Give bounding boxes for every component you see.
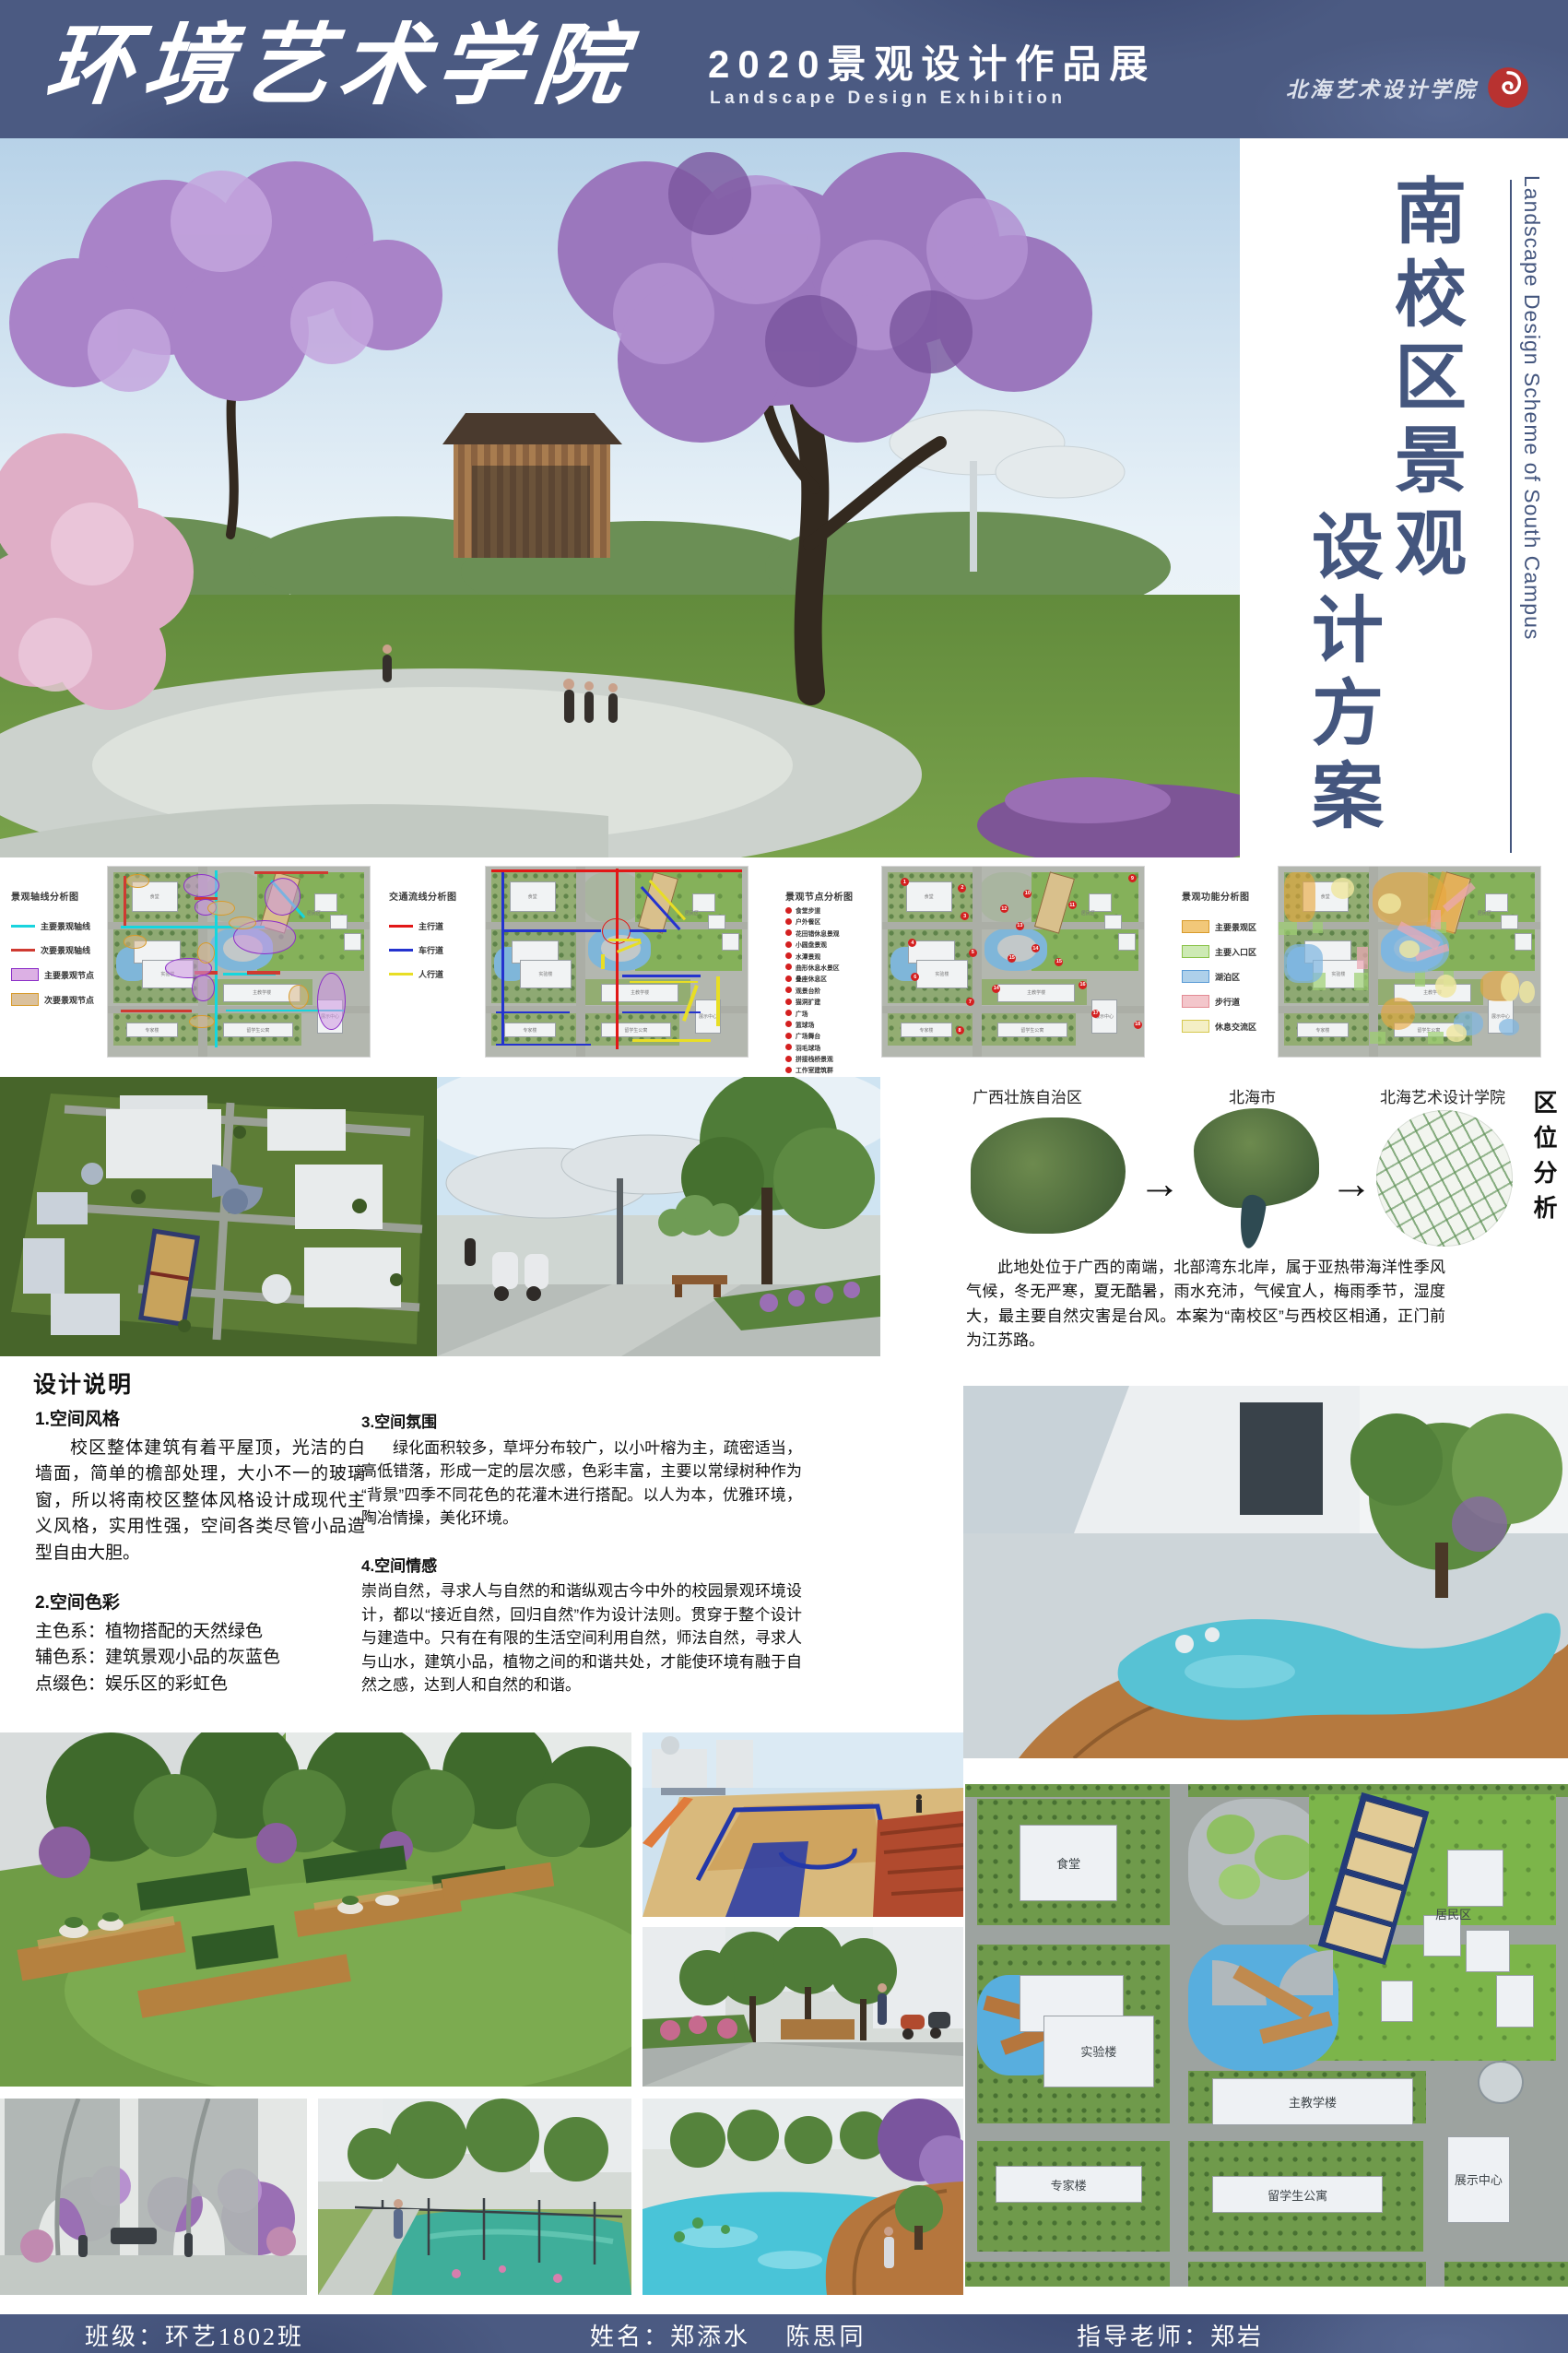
render-arch-pavilion [0,2099,307,2295]
legend-item: 食堂步道 [785,905,894,915]
location-analysis: 广西壮族自治区 北海市 北海艺术设计学院 → → 区位分析 [963,1077,1568,1252]
legend-label: 人行道 [419,968,443,980]
legend-swatch [1182,1020,1209,1033]
analysis-map: 食堂实验楼主教学楼专家楼留学生公寓展示中心居民区 [485,866,749,1058]
plan-building-label: 实验楼 [520,960,572,988]
analysis-panel-axis: 景观轴线分析图 主要景观轴线次要景观轴线主要景观节点次要景观节点 食堂实验楼主教… [6,863,372,1077]
legend-swatch [785,975,792,982]
legend-item: 观景台阶 [785,986,894,995]
node-marker: 12 [1000,905,1008,913]
plan-building-label: 专家楼 [504,1023,556,1037]
map-guangxi [971,1117,1126,1234]
node-marker: 5 [969,949,977,957]
legend-swatch [785,964,792,970]
legend-label: 次要景观轴线 [41,944,90,956]
legend-swatch [1182,970,1209,983]
legend-swatch [1182,945,1209,958]
legend-item: 步行道 [1182,995,1276,1008]
analysis-legend: 主行道车行道人行道 [389,920,483,980]
plan-building-label: 实验楼 [1043,2016,1154,2087]
plan-building-label: 实验楼 [916,960,968,988]
legend-label: 猫洞扩建 [796,997,820,1006]
legend-swatch [785,952,792,959]
hero-illustration [0,138,1240,857]
legend-item: 广场 [785,1009,894,1018]
legend-item: 车行道 [389,944,483,956]
legend-label: 休息交流区 [1215,1021,1256,1033]
legend-label: 小圆盘景观 [796,940,827,949]
location-description: 此地处位于广西的南端，北部湾东北岸，属于亚热带海洋性季风气候，冬无严寒，夏无酷暑… [966,1256,1445,1353]
plan-building-label: 居民区 [307,910,344,921]
node-marker: 17 [1091,1010,1100,1018]
legend-label: 主行道 [419,920,443,932]
legend-item: 人行道 [389,968,483,980]
legend-swatch [785,907,792,914]
plan-building-label: 留学生公寓 [223,1023,293,1037]
note-heading: 3.空间氛围 [361,1411,802,1435]
render-pond-fence [318,2099,631,2295]
design-notes-col1: 1.空间风格 校区整体建筑有着平屋顶，光洁的白墙面，简单的檐部处理，大小不一的玻… [35,1407,365,1721]
poster-title-en: Landscape Design Scheme of South Campus [1519,175,1544,857]
analysis-panel-traffic: 交通流线分析图 主行道车行道人行道 食堂实验楼主教学楼专家楼留学生公寓展示中心居… [383,863,750,1077]
legend-swatch [785,941,792,948]
location-section-title: 区位分析 [1527,1090,1562,1230]
legend-swatch [11,925,35,928]
analysis-legend: 主要景观轴线次要景观轴线主要景观节点次要景观节点 [11,920,105,1006]
logo-text: 北海艺术设计学院 [1286,72,1478,103]
render-lawn-terrace [0,1732,631,2087]
analysis-title: 景观节点分析图 [785,889,854,903]
analysis-panel-function: 景观功能分析图 主要景观区主要入口区湖泊区步行道休息交流区 食堂实验楼主教学楼专… [1176,863,1543,1077]
map-campus-streets [1376,1110,1513,1247]
location-step-label: 广西壮族自治区 [973,1084,1082,1107]
legend-swatch [785,1067,792,1073]
plan-building-label: 居民区 [1435,1905,1520,1930]
street2-illustration [643,1927,963,2087]
legend-swatch [389,925,413,928]
analysis-title: 景观轴线分析图 [11,889,79,903]
street-illustration [437,1077,880,1356]
legend-item: 广场舞台 [785,1031,894,1040]
legend-label: 篮球场 [796,1020,814,1029]
node-marker: 13 [1016,922,1024,930]
students-label: 姓名：郑添水 陈思同 [590,2318,867,2352]
note-heading: 1.空间风格 [35,1407,365,1434]
plan-building-label: 居民区 [1081,910,1118,921]
school-logo: 北海艺术设计学院 [1286,66,1529,109]
analysis-map: 食堂实验楼主教学楼专家楼留学生公寓展示中心居民区 [107,866,371,1058]
legend-item: 主行道 [389,920,483,932]
pool-illustration [963,1386,1568,1758]
legend-label: 食堂步道 [796,905,820,915]
exhibition-title: 2020景观设计作品展 [708,33,1156,89]
legend-item: 水潭景观 [785,952,894,961]
plan-building-label: 专家楼 [126,1023,178,1037]
hero-render [0,138,1240,857]
legend-item: 次要景观轴线 [11,944,105,956]
design-notes-col2: 3.空间氛围 绿化面积较多，草坪分布较广，以小叶榕为主，疏密适当，高低错落，形成… [361,1411,802,1721]
legend-swatch [785,1033,792,1039]
seal-swirl-icon [1487,66,1529,109]
poster-title-line2: 设计方案 [1291,509,1394,841]
legend-label: 主要景观轴线 [41,920,90,932]
lawn-illustration [0,1732,631,2087]
plan-building-label: 食堂 [510,881,556,912]
location-step-label: 北海艺术设计学院 [1380,1084,1505,1107]
legend-swatch [785,1010,792,1016]
analysis-title: 交通流线分析图 [389,889,457,903]
plan-building-label: 主教学楼 [1212,2078,1413,2125]
legend-label: 步行道 [1215,996,1240,1008]
legend-label: 主要入口区 [1215,946,1256,958]
legend-swatch [785,918,792,925]
plan-building-label: 留学生公寓 [997,1023,1067,1037]
legend-swatch [389,949,413,952]
legend-swatch [11,949,35,952]
master-plan: 食堂实验楼主教学楼专家楼留学生公寓展示中心居民区 [965,1784,1568,2287]
legend-item: 小圆盘景观 [785,940,894,949]
legend-swatch [1182,995,1209,1008]
node-marker: 8 [956,1026,964,1035]
legend-swatch [785,929,792,936]
arrow-right-icon: → [1330,1162,1373,1204]
legend-item: 主要景观区 [1182,920,1276,933]
title-divider [1510,180,1512,853]
poster-root: 环境艺术学院 2020景观设计作品展 Landscape Design Exhi… [0,0,1568,2353]
legend-label: 曲形休息水景区 [796,963,840,972]
analysis-map: 食堂实验楼主教学楼专家楼留学生公寓展示中心居民区1234567891011121… [881,866,1145,1058]
design-notes-title: 设计说明 [33,1366,133,1400]
plan-building-label: 食堂 [906,881,952,912]
arrow-right-icon: → [1138,1162,1181,1204]
legend-label: 观景台阶 [796,986,820,995]
deckpool-illustration [643,2099,963,2295]
node-marker: 16 [1079,981,1087,989]
legend-item: 花田错休息景观 [785,928,894,938]
legend-swatch [11,968,39,981]
legend-swatch [1182,920,1209,933]
plan-building-label: 主教学楼 [601,984,678,1003]
school-title: 环境艺术学院 [39,0,699,135]
legend-label: 主要景观区 [1215,921,1256,933]
legend-item: 户外餐区 [785,916,894,926]
legend-swatch [785,987,792,993]
legend-item: 猫洞扩建 [785,997,894,1006]
analysis-legend: 主要景观区主要入口区湖泊区步行道休息交流区 [1182,920,1276,1033]
analysis-map: 食堂实验楼主教学楼专家楼留学生公寓展示中心居民区 [1278,866,1541,1058]
legend-label: 湖泊区 [1215,971,1240,983]
legend-item: 主要景观节点 [11,968,105,981]
pond-illustration [318,2099,631,2295]
legend-label: 花田错休息景观 [796,928,840,938]
render-pool-plaza [963,1386,1568,1758]
legend-item: 曲形休息水景区 [785,963,894,972]
legend-label: 水潭景观 [796,952,820,961]
legend-swatch [785,1056,792,1062]
legend-label: 次要景观节点 [44,994,94,1006]
legend-item: 次要景观节点 [11,993,105,1006]
legend-label: 羽毛球场 [796,1043,820,1052]
aerial-illustration [0,1077,437,1356]
analysis-panel-nodes: 景观节点分析图 食堂步道户外餐区花田错休息景观小圆盘景观水潭景观曲形休息水景区叠… [780,863,1147,1077]
legend-label: 拼接栈桥景观 [796,1054,833,1063]
legend-swatch [785,999,792,1005]
basketball-illustration [643,1732,963,1917]
plan-building-label: 居民区 [685,910,722,921]
node-marker: 2 [958,884,966,893]
note-body: 崇尚自然，寻求人与自然的和谐纵观古今中外的校园景观环境设计，都以“接近自然，回归… [361,1579,802,1697]
header-bar: 环境艺术学院 2020景观设计作品展 Landscape Design Exhi… [0,0,1568,138]
exhibition-subtitle: Landscape Design Exhibition [710,89,1067,109]
analysis-title: 景观功能分析图 [1182,889,1250,903]
legend-item: 湖泊区 [1182,970,1276,983]
legend-item: 主要入口区 [1182,945,1276,958]
legend-item: 拼接栈桥景观 [785,1054,894,1063]
legend-label: 工作室建筑群 [796,1065,833,1074]
legend-label: 广场 [796,1009,808,1018]
legend-item: 主要景观轴线 [11,920,105,932]
location-step-label: 北海市 [1229,1084,1276,1107]
legend-item: 篮球场 [785,1020,894,1029]
footer-bar: 班级：环艺1802班 姓名：郑添水 陈思同 指导老师：郑岩 [0,2314,1568,2353]
legend-swatch [11,993,39,1006]
legend-item: 休息交流区 [1182,1020,1276,1033]
node-marker: 14 [992,985,1000,993]
legend-swatch [785,1044,792,1050]
plan-building-label: 专家楼 [996,2166,1142,2203]
map-beihai [1194,1108,1319,1208]
advisor-label: 指导老师：郑岩 [1077,2318,1264,2352]
note-body: 绿化面积较多，草坪分布较广，以小叶榕为主，疏密适当，高低错落，形成一定的层次感，… [361,1437,802,1531]
render-aerial-axon [0,1077,437,1356]
legend-item: 工作室建筑群 [785,1065,894,1074]
node-marker: 7 [966,998,974,1006]
legend-label: 车行道 [419,944,443,956]
note-heading: 4.空间情感 [361,1555,802,1579]
render-canopy-street [437,1077,880,1356]
render-street-scooters [643,1927,963,2087]
render-deck-pool [643,2099,963,2295]
legend-label: 广场舞台 [796,1031,820,1040]
plan-building-label: 居民区 [1478,910,1515,921]
legend-item: 叠座休息区 [785,974,894,983]
plan-building-label: 专家楼 [901,1023,952,1037]
node-marker: 11 [1068,901,1077,909]
legend-label: 叠座休息区 [796,974,827,983]
plan-building-label: 专家楼 [1297,1023,1349,1037]
plan-building-label: 食堂 [1020,1825,1118,1902]
plan-building-label: 留学生公寓 [601,1023,671,1037]
legend-swatch [785,1021,792,1027]
render-basketball-court [643,1732,963,1917]
plan-building-label: 展示中心 [1447,2136,1509,2224]
plan-building-label: 主教学楼 [997,984,1075,1003]
arch-illustration [0,2099,307,2295]
note-heading: 2.空间色彩 [35,1590,365,1617]
plan-building-label: 留学生公寓 [1212,2176,1383,2213]
legend-swatch [389,973,413,975]
legend-item: 羽毛球场 [785,1043,894,1052]
note-body: 主色系：植物搭配的天然绿色 辅色系：建筑景观小品的灰蓝色 点缀色：娱乐区的彩虹色 [35,1619,365,1698]
class-label: 班级：环艺1802班 [85,2318,304,2352]
legend-label: 主要景观节点 [44,969,94,981]
node-marker: 18 [1134,1021,1142,1029]
note-body: 校区整体建筑有着平屋顶，光洁的白墙面，简单的檐部处理，大小不一的玻璃窗，所以将南… [35,1436,365,1567]
legend-label: 户外餐区 [796,916,820,926]
title-panel: 南校区景观 设计方案 Landscape Design Scheme of So… [1240,138,1568,857]
